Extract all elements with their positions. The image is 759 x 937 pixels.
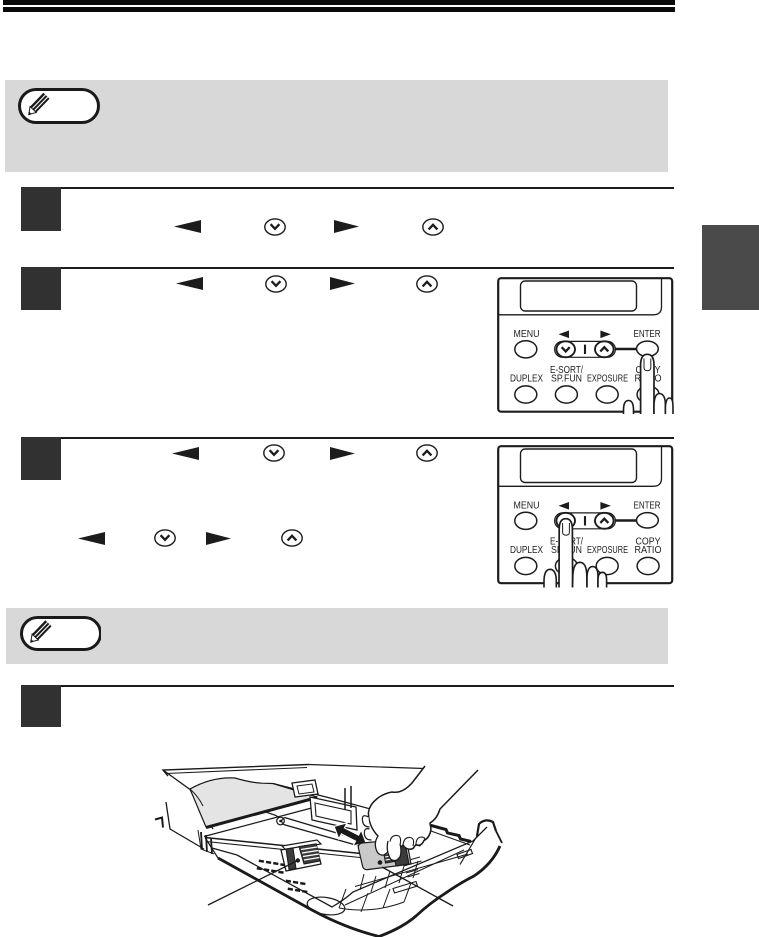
svg-text:ENTER: ENTER [634, 500, 661, 512]
svg-text:ENTER: ENTER [634, 328, 661, 340]
svg-text:MENU: MENU [514, 328, 540, 340]
svg-text:DUPLEX: DUPLEX [510, 373, 543, 385]
svg-text:SP.FUN: SP.FUN [551, 373, 582, 385]
svg-text:EXPOSURE: EXPOSURE [587, 373, 628, 385]
svg-text:DUPLEX: DUPLEX [510, 544, 543, 556]
svg-text:MENU: MENU [514, 500, 540, 512]
svg-text:RATIO: RATIO [635, 544, 662, 556]
svg-text:EXPOSURE: EXPOSURE [587, 544, 628, 556]
